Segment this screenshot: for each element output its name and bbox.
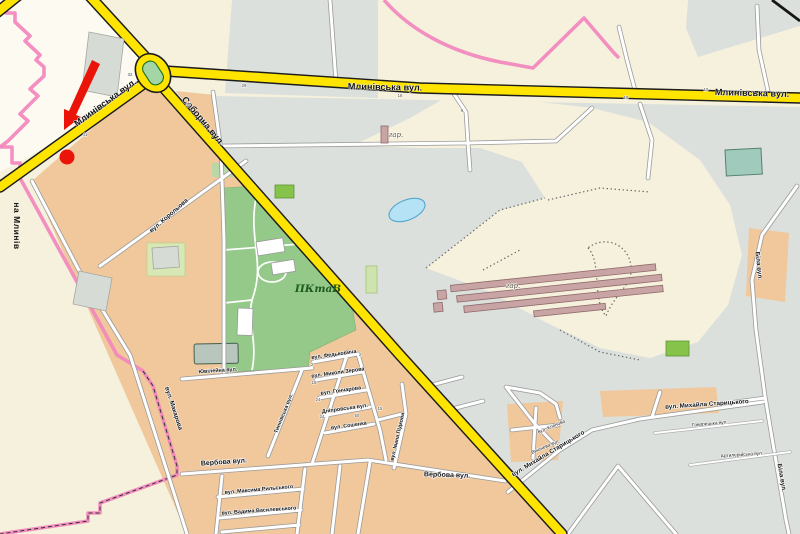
house-number: 16	[398, 93, 403, 98]
house-number: 24	[320, 414, 325, 419]
green-square	[666, 341, 689, 356]
street-label: гар.	[506, 282, 520, 290]
house-number: 32	[128, 72, 133, 77]
reservoir-building	[725, 148, 762, 176]
house-number: 18	[312, 380, 317, 385]
map-canvas[interactable]: Млинівська вул.Млинівська вул.Млинівська…	[0, 0, 800, 534]
sports-ground	[194, 343, 238, 364]
house-number: 41	[83, 132, 88, 137]
red-dot-marker	[60, 150, 75, 165]
street-label: ПКтаВ	[294, 283, 341, 295]
house-number: 10	[704, 87, 709, 92]
street-label: Млинівська вул.	[715, 87, 790, 99]
street-label: гар.	[389, 131, 403, 139]
street-label: на Млинів	[12, 202, 22, 249]
house-number: 29	[242, 83, 247, 88]
house-number: 44	[186, 102, 191, 107]
house-number: 15	[378, 406, 383, 411]
park-building	[237, 308, 253, 336]
house-number: 18	[624, 95, 629, 100]
street-label: Вербова вул.	[424, 470, 471, 480]
green-square	[275, 185, 294, 198]
green-strip	[366, 266, 377, 293]
house-number: 24	[316, 397, 321, 402]
garage-building	[381, 126, 388, 143]
city-map: Млинівська вул.Млинівська вул.Млинівська…	[0, 0, 800, 534]
garage-block	[437, 290, 447, 300]
street-label: Млинівська вул.	[348, 81, 423, 92]
building	[152, 246, 179, 269]
building	[73, 271, 112, 311]
garage-block	[433, 302, 443, 312]
terrain-areas	[0, 0, 800, 534]
house-number: 50	[355, 413, 360, 418]
